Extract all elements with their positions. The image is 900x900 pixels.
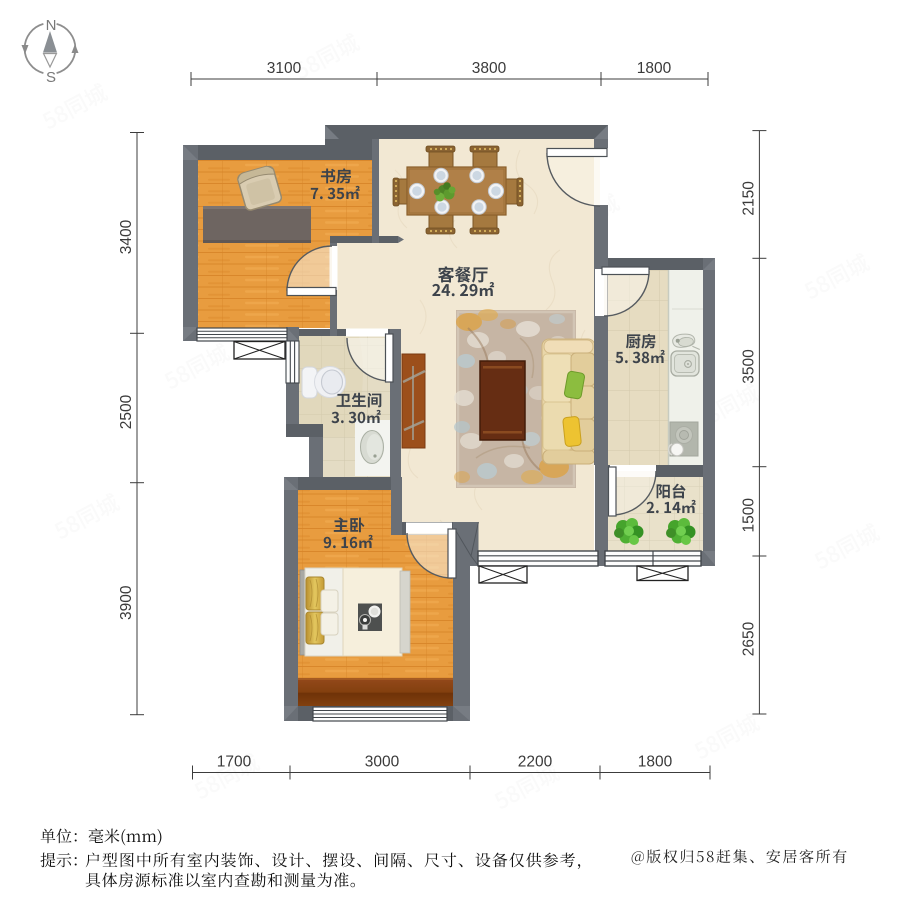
svg-text:2150: 2150 xyxy=(740,181,757,216)
svg-text:2650: 2650 xyxy=(740,621,757,656)
svg-text:3400: 3400 xyxy=(118,219,135,254)
svg-text:2200: 2200 xyxy=(518,754,553,771)
svg-text:N: N xyxy=(46,17,57,34)
svg-text:S: S xyxy=(46,69,56,86)
svg-text:1800: 1800 xyxy=(638,754,673,771)
svg-text:3500: 3500 xyxy=(740,349,757,384)
svg-text:1500: 1500 xyxy=(740,498,757,533)
svg-text:3800: 3800 xyxy=(472,60,507,77)
svg-text:3100: 3100 xyxy=(267,60,302,77)
svg-text:1700: 1700 xyxy=(217,754,252,771)
svg-text:2500: 2500 xyxy=(118,394,135,429)
svg-text:3900: 3900 xyxy=(118,585,135,620)
svg-text:1800: 1800 xyxy=(637,60,672,77)
svg-text:3000: 3000 xyxy=(365,754,400,771)
